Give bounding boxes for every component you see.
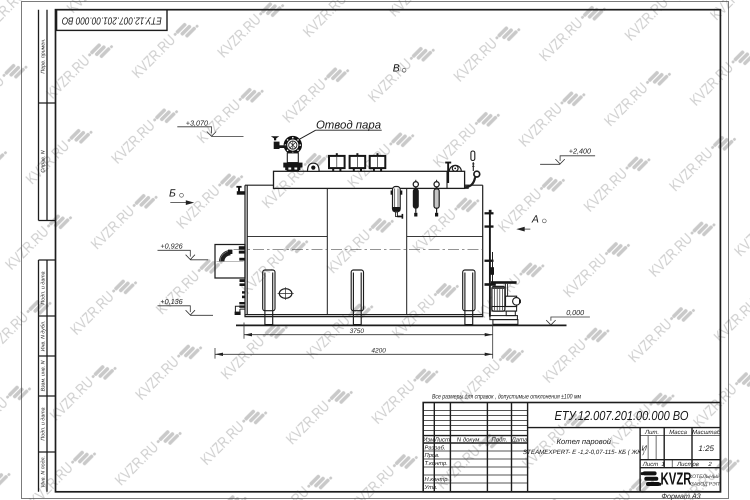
svg-text:Перв. примен.: Перв. примен.: [41, 38, 47, 73]
svg-text:Лист: Лист: [642, 461, 658, 468]
svg-text:Котел паровой: Котел паровой: [557, 437, 612, 446]
svg-text:Подп. и дата: Подп. и дата: [41, 271, 47, 304]
svg-text:Б: Б: [169, 187, 176, 199]
svg-text:4200: 4200: [371, 348, 386, 355]
svg-text:Инв. N подл.: Инв. N подл.: [41, 456, 47, 487]
svg-text:Взам. инв. N: Взам. инв. N: [41, 360, 47, 391]
svg-text:+3,070: +3,070: [186, 118, 208, 127]
svg-text:Справ. N: Справ. N: [41, 150, 47, 172]
svg-text:ЕТУ.12.007.201.00.000 ВО: ЕТУ.12.007.201.00.000 ВО: [555, 408, 689, 423]
svg-text:Масштаб: Масштаб: [692, 429, 721, 436]
svg-text:Лист: Лист: [434, 437, 450, 444]
svg-text:Н.контр.: Н.контр.: [425, 477, 450, 483]
svg-text:Т.контр.: Т.контр.: [425, 461, 448, 467]
svg-text:2: 2: [707, 461, 712, 468]
svg-text:1:25: 1:25: [698, 444, 714, 453]
svg-text:Дата: Дата: [511, 437, 528, 444]
svg-text:1: 1: [661, 461, 664, 468]
svg-text:Все размеры для справок , допу: Все размеры для справок , допустимые отк…: [432, 394, 581, 401]
svg-text:Лит.: Лит.: [644, 429, 659, 436]
svg-text:Утв.: Утв.: [424, 485, 438, 491]
svg-text:А: А: [531, 213, 539, 225]
svg-text:Масса: Масса: [669, 429, 687, 436]
svg-text:+0,926: +0,926: [160, 242, 182, 251]
svg-text:KVZR: KVZR: [661, 468, 692, 488]
svg-text:Подп. и дата: Подп. и дата: [41, 407, 47, 440]
svg-text:ЗАВОД РЭП: ЗАВОД РЭП: [691, 482, 720, 488]
svg-text:N докум.: N докум.: [457, 437, 481, 444]
svg-text:Листов: Листов: [676, 461, 699, 468]
svg-text:КОТЕЛЬНЫЙ: КОТЕЛЬНЫЙ: [689, 473, 721, 480]
svg-text:STEAMEXPERT- Е -1,2-0,07-115-: STEAMEXPERT- Е -1,2-0,07-115- КБ ( ЖК ): [523, 449, 645, 456]
svg-text:3750: 3750: [350, 328, 365, 335]
svg-text:+2,400: +2,400: [569, 146, 591, 155]
svg-text:Подп.: Подп.: [491, 437, 507, 444]
svg-text:Разраб.: Разраб.: [425, 444, 446, 451]
svg-text:Инв. N дубл.: Инв. N дубл.: [41, 321, 47, 352]
svg-text:ЕТУ.12.007.201.00.000 ВО: ЕТУ.12.007.201.00.000 ВО: [62, 14, 162, 25]
svg-text:0,000: 0,000: [566, 308, 584, 317]
svg-text:Изм: Изм: [423, 437, 434, 444]
svg-text:Формат А3: Формат А3: [661, 492, 700, 500]
svg-text:В: В: [393, 63, 400, 75]
svg-text:+0,136: +0,136: [160, 297, 182, 306]
svg-text:Пров.: Пров.: [425, 453, 440, 459]
